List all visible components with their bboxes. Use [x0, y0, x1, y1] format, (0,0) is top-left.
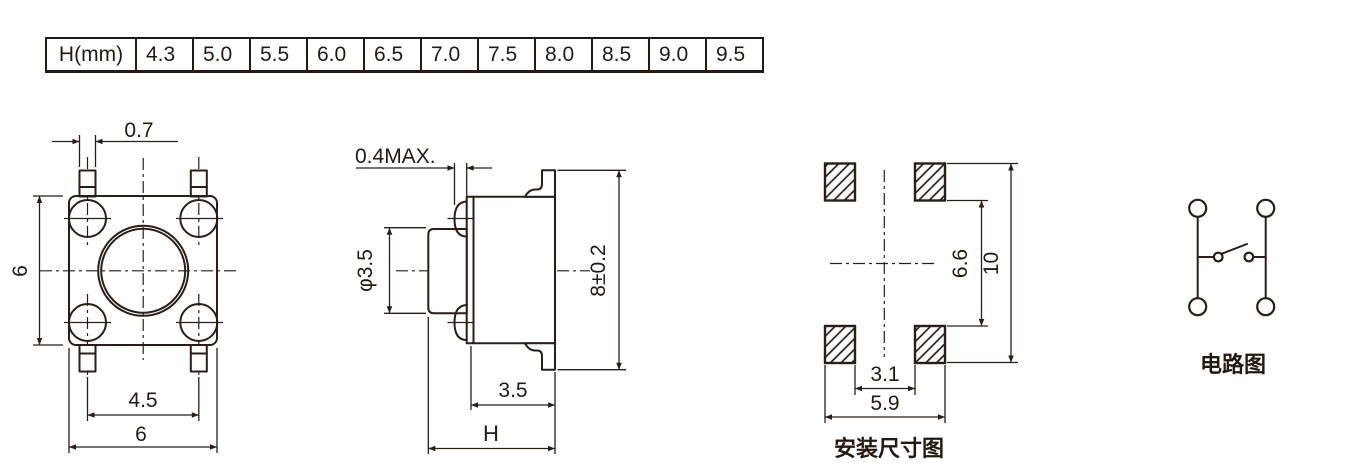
dim-pad-inner-horizontal: 3.1 — [855, 363, 915, 395]
dim-label: 0.7 — [124, 119, 153, 142]
dim-label: φ3.5 — [354, 249, 377, 292]
dim-pin-pitch: 4.5 — [88, 377, 199, 421]
circuit-view-caption: 电路图 — [1200, 352, 1266, 377]
circuit-wires — [1198, 217, 1266, 298]
switch-contacts — [1214, 244, 1253, 261]
technical-drawings: 0.7 6 4.5 6 — [0, 0, 1348, 474]
dim-label: 0.4MAX. — [355, 145, 436, 168]
button-stem — [428, 229, 466, 313]
dim-stem-diameter: φ3.5 — [354, 228, 426, 314]
side-view: 0.4MAX. φ3.5 8±0.2 3.5 — [354, 145, 626, 454]
circuit-diagram: 电路图 — [1189, 200, 1274, 377]
bottom-flange-pin — [525, 343, 555, 369]
dim-body-side: 6 — [9, 196, 63, 345]
switch-lever — [1222, 244, 1248, 254]
dim-label: 8±0.2 — [587, 244, 610, 296]
dim-label: 3.5 — [498, 379, 527, 402]
dim-label: 6 — [9, 265, 32, 277]
dim-label: 6 — [135, 423, 147, 446]
dim-label: H — [483, 421, 499, 446]
dim-label: 3.1 — [870, 363, 899, 386]
dim-label: 6.6 — [949, 249, 972, 278]
datasheet-page: H(mm) 4.3 5.0 5.5 6.0 6.5 7.0 7.5 8.0 8.… — [0, 0, 1348, 474]
dim-label: 5.9 — [870, 392, 899, 415]
top-flange-pin — [525, 170, 555, 196]
dim-label: 10 — [980, 252, 1003, 275]
top-view: 0.7 6 4.5 6 — [9, 119, 240, 453]
mounting-view-caption: 安装尺寸图 — [834, 436, 944, 461]
dim-body-depth: 8±0.2 — [558, 170, 627, 369]
dim-pin-width: 0.7 — [52, 119, 178, 167]
mounting-layout-view: 6.6 10 3.1 5.9 安装尺寸 — [825, 164, 1018, 462]
dim-label: 4.5 — [128, 389, 157, 412]
side-body-outline — [467, 197, 555, 344]
